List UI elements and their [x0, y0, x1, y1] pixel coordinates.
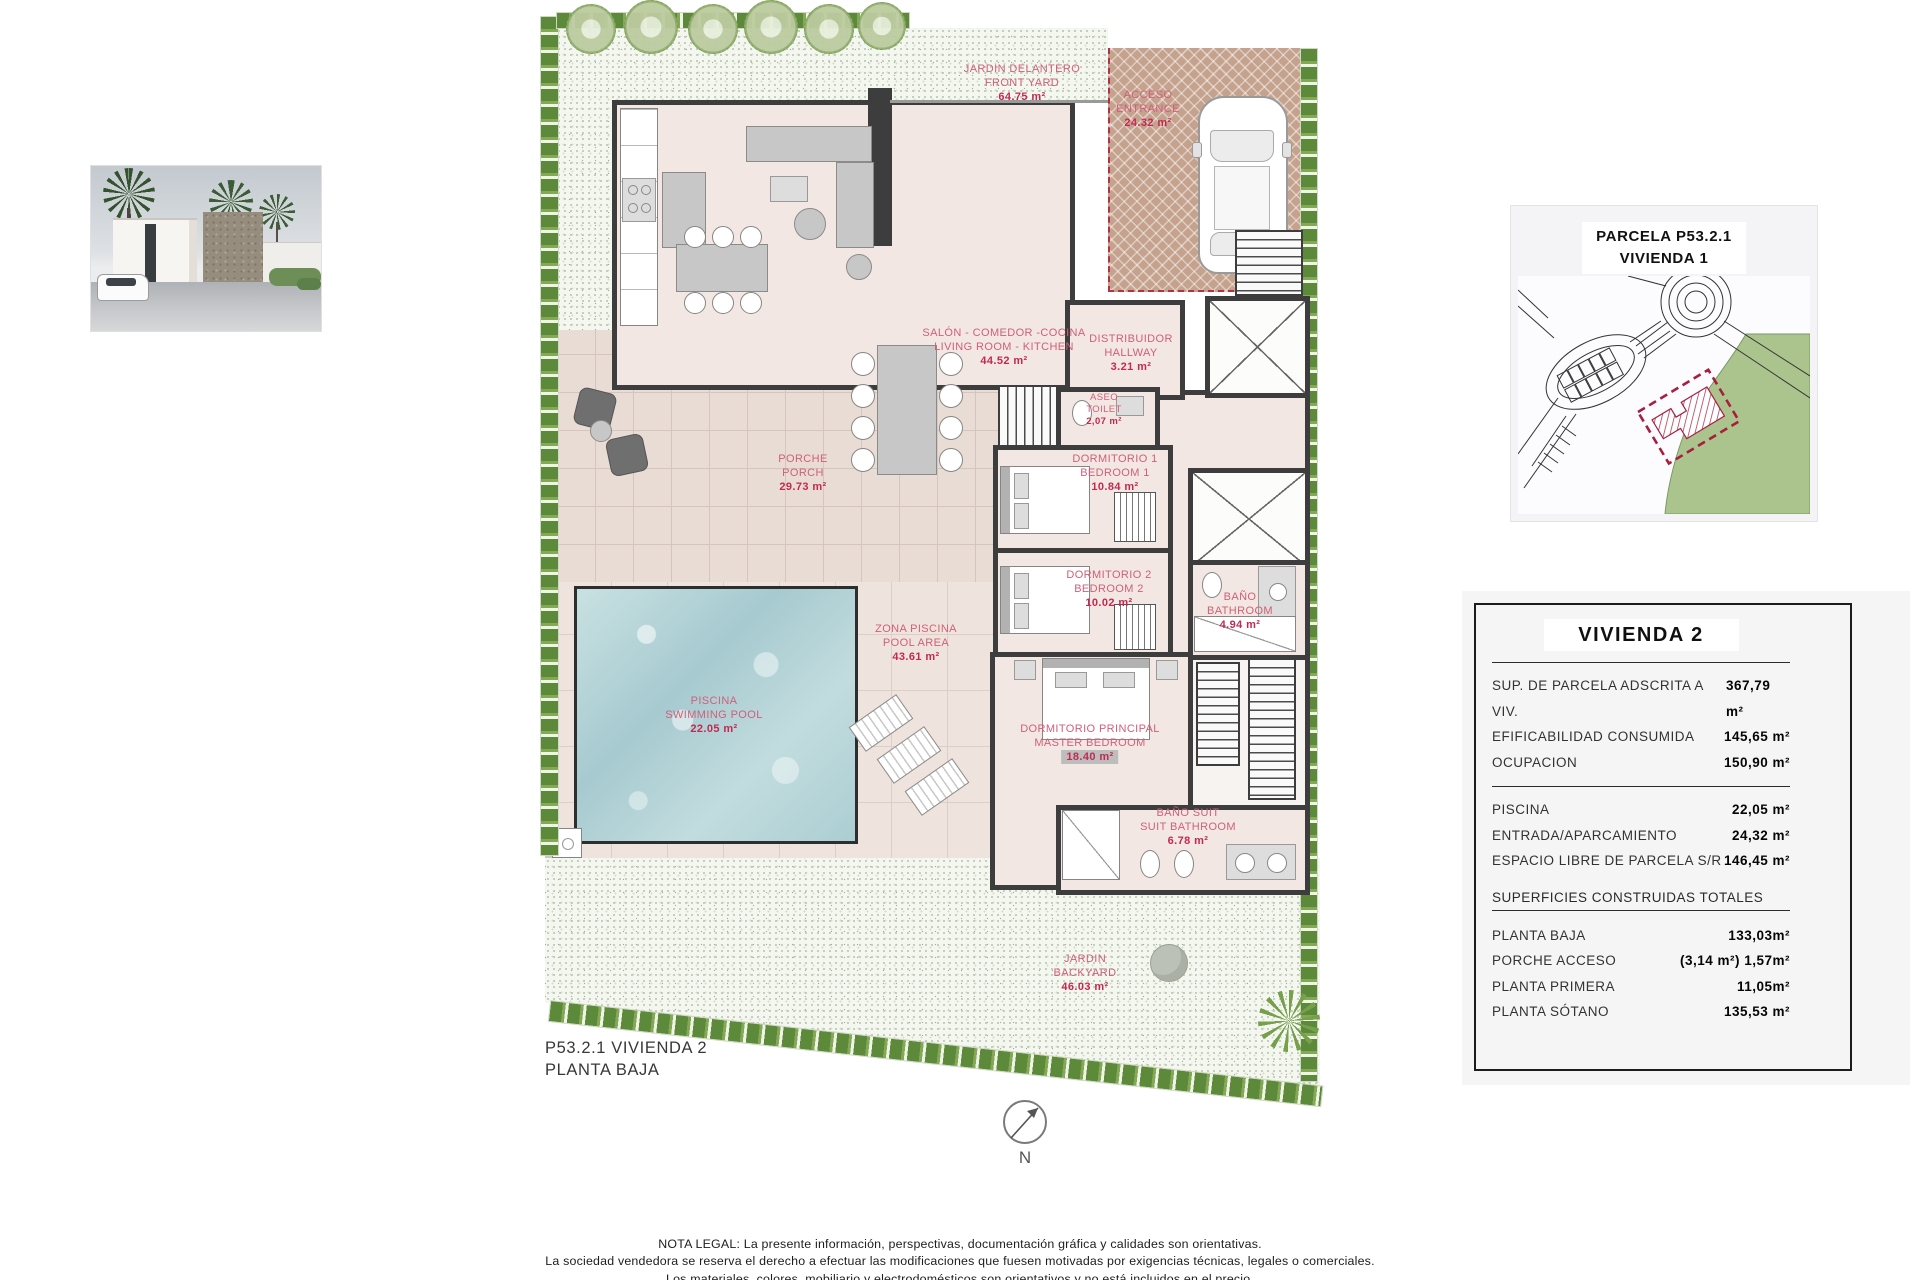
tree-icon	[804, 4, 854, 54]
row-value: (3,14 m²) 1,57m²	[1680, 948, 1790, 974]
row-label: ENTRADA/APARCAMIENTO	[1492, 823, 1677, 849]
room-area: 64.75 m²	[964, 90, 1080, 104]
armchair	[794, 208, 826, 240]
room-name-en: SUIT BATHROOM	[1140, 820, 1236, 834]
label-front-yard: JARDIN DELANTERO FRONT YARD 64.75 m²	[964, 62, 1080, 104]
room-area: 29.73 m²	[778, 480, 827, 494]
table-row: EFIFICABILIDAD CONSUMIDA 145,65 m²	[1492, 724, 1790, 750]
room-area: 10.02 m²	[1066, 596, 1151, 610]
room-area: 43.61 m²	[875, 650, 957, 664]
plan-code: P53.2.1 VIVIENDA 2	[545, 1037, 707, 1059]
wardrobe	[1114, 492, 1156, 542]
table-row: PISCINA 22,05 m²	[1492, 797, 1790, 823]
row-label: PLANTA BAJA	[1492, 923, 1586, 949]
site-map-title: PARCELA P53.2.1 VIVIENDA 1	[1582, 222, 1746, 274]
label-hallway: DISTRIBUIDOR HALLWAY 3.21 m²	[1089, 332, 1173, 374]
row-label: PISCINA	[1492, 797, 1550, 823]
row-value: 133,03m²	[1728, 923, 1790, 949]
dining-chair	[740, 292, 762, 314]
dining-chair	[712, 226, 734, 248]
row-label: ESPACIO LIBRE DE PARCELA S/R	[1492, 848, 1722, 874]
site-map-drawing	[1518, 276, 1810, 514]
label-backyard: JARDIN BACKYARD 46.03 m²	[1054, 952, 1117, 994]
room-name-en: PORCH	[778, 466, 827, 480]
room-area: 3.21 m²	[1089, 360, 1173, 374]
room-area: 6.78 m²	[1140, 834, 1236, 848]
row-value: 11,05m²	[1737, 974, 1790, 1000]
label-pool-area: ZONA PISCINA POOL AREA 43.61 m²	[875, 622, 957, 664]
room-name-es: PISCINA	[665, 694, 762, 708]
site-map-panel: PARCELA P53.2.1 VIVIENDA 1	[1510, 205, 1818, 522]
pouf	[846, 254, 872, 280]
room-name-es: DORMITORIO 1	[1072, 452, 1157, 466]
room-name-en: LIVING ROOM - KITCHEN	[922, 340, 1085, 354]
legal-line3: Los materiales, colores, mobiliario y el…	[0, 1271, 1920, 1280]
row-label: EFIFICABILIDAD CONSUMIDA	[1492, 724, 1695, 750]
nightstand	[1014, 660, 1036, 680]
table-row: PORCHE ACCESO (3,14 m²) 1,57m²	[1492, 948, 1790, 974]
room-area: 18.40 m²	[1061, 750, 1118, 764]
side-yard-ground	[556, 100, 614, 332]
room-name-es: ZONA PISCINA	[875, 622, 957, 636]
stairs-flight	[1248, 658, 1296, 800]
room-name-es: DISTRIBUIDOR	[1089, 332, 1173, 346]
porch-chair	[939, 416, 963, 440]
room-name-en: BACKYARD	[1054, 966, 1117, 980]
room-name-es: ASEO	[1086, 392, 1122, 404]
summary-panel: VIVIENDA 2 SUP. DE PARCELA ADSCRITA A VI…	[1462, 591, 1910, 1085]
patio-shaft	[1188, 468, 1310, 570]
palm-tree-icon	[103, 168, 155, 220]
floorplan-sheet: JARDIN DELANTERO FRONT YARD 64.75 m² ACC…	[0, 0, 1920, 1280]
north-label: N	[1003, 1148, 1047, 1168]
row-label: PLANTA PRIMERA	[1492, 974, 1615, 1000]
room-name-es: SALÓN - COMEDOR -COCINA	[922, 326, 1085, 340]
villa-window-strip	[145, 224, 156, 282]
table-row: PLANTA PRIMERA 11,05m²	[1492, 974, 1790, 1000]
row-value: 135,53 m²	[1724, 999, 1790, 1025]
sofa-chaise	[836, 162, 874, 248]
site-map-title-line2: VIVIENDA 1	[1596, 248, 1732, 270]
room-area: 24.32 m²	[1116, 116, 1180, 130]
room-area: 22.05 m²	[665, 722, 762, 736]
label-bathroom: BAÑO BATHROOM 4.94 m²	[1207, 590, 1273, 632]
room-name-en: HALLWAY	[1089, 346, 1173, 360]
side-table	[590, 420, 612, 442]
row-value: 146,45 m²	[1724, 848, 1790, 874]
label-bedroom1: DORMITORIO 1 BEDROOM 1 10.84 m²	[1072, 452, 1157, 494]
hedge-left	[540, 16, 559, 856]
label-master-bedroom: DORMITORIO PRINCIPAL MASTER BEDROOM 18.4…	[1020, 722, 1160, 764]
row-label: OCUPACION	[1492, 750, 1577, 776]
room-name-en: ENTRANCE	[1116, 102, 1180, 116]
table-row: ESPACIO LIBRE DE PARCELA S/R 146,45 m²	[1492, 848, 1790, 874]
label-toilet: ASEO TOILET 2,07 m²	[1086, 392, 1122, 428]
north-compass-icon	[998, 1096, 1052, 1150]
room-area: 10.84 m²	[1072, 480, 1157, 494]
shower-tray	[1062, 810, 1120, 880]
row-value: 150,90 m²	[1724, 750, 1790, 776]
row-label: PORCHE ACCESO	[1492, 948, 1616, 974]
tree-icon	[688, 4, 738, 54]
label-suite-bathroom: BAÑO SUIT SUIT BATHROOM 6.78 m²	[1140, 806, 1236, 848]
label-living: SALÓN - COMEDOR -COCINA LIVING ROOM - KI…	[922, 326, 1085, 368]
room-name-en: TOILET	[1086, 404, 1122, 416]
nightstand	[1156, 660, 1178, 680]
stove	[622, 178, 656, 222]
tree-icon	[744, 0, 798, 54]
row-value: 24,32 m²	[1732, 823, 1790, 849]
porch-chair	[939, 448, 963, 472]
divider	[1492, 662, 1790, 663]
row-label: SUP. DE PARCELA ADSCRITA A VIV.	[1492, 673, 1726, 724]
room-name-es: PORCHE	[778, 452, 827, 466]
dining-chair	[740, 226, 762, 248]
room-name-es: JARDIN DELANTERO	[964, 62, 1080, 76]
label-bedroom2: DORMITORIO 2 BEDROOM 2 10.02 m²	[1066, 568, 1151, 610]
wardrobe	[1114, 604, 1156, 650]
room-name-es: BAÑO SUIT	[1140, 806, 1236, 820]
row-value: 145,65 m²	[1724, 724, 1790, 750]
legal-line2: La sociedad vendedora se reserva el dere…	[0, 1253, 1920, 1270]
photo-car	[97, 274, 149, 301]
garden-palm-icon	[1258, 990, 1320, 1052]
exterior-photo	[90, 165, 322, 332]
photo-shrubs	[297, 278, 321, 290]
room-name-en: BEDROOM 1	[1072, 466, 1157, 480]
lounge-chair	[604, 432, 649, 477]
coffee-table	[770, 176, 808, 202]
room-name-en: FRONT YARD	[964, 76, 1080, 90]
site-map-title-line1: PARCELA P53.2.1	[1596, 226, 1732, 248]
room-name-es: DORMITORIO 2	[1066, 568, 1151, 582]
table-row: SUP. DE PARCELA ADSCRITA A VIV. 367,79 m…	[1492, 673, 1790, 724]
summary-title: VIVIENDA 2	[1544, 619, 1739, 651]
tree-icon	[566, 4, 616, 54]
summary-panel-inner: VIVIENDA 2 SUP. DE PARCELA ADSCRITA A VI…	[1474, 603, 1852, 1071]
label-porch: PORCHE PORCH 29.73 m²	[778, 452, 827, 494]
dining-chair	[684, 292, 706, 314]
row-value: 22,05 m²	[1732, 797, 1790, 823]
divider	[1492, 786, 1790, 787]
row-label: PLANTA SÓTANO	[1492, 999, 1609, 1025]
room-name-es: ACCESO	[1116, 88, 1180, 102]
table-row: ENTRADA/APARCAMIENTO 24,32 m²	[1492, 823, 1790, 849]
table-row: OCUPACION 150,90 m²	[1492, 750, 1790, 776]
dining-chair	[684, 226, 706, 248]
palm-tree-icon	[259, 194, 295, 230]
row-value: 367,79 m²	[1726, 673, 1790, 724]
room-name-en: BEDROOM 2	[1066, 582, 1151, 596]
label-pool: PISCINA SWIMMING POOL 22.05 m²	[665, 694, 762, 736]
legal-note: NOTA LEGAL: La presente información, per…	[0, 1236, 1920, 1280]
stairs-basement	[998, 385, 1062, 449]
plan-floor: PLANTA BAJA	[545, 1059, 707, 1081]
room-name-en: SWIMMING POOL	[665, 708, 762, 722]
skylight-box	[1205, 296, 1310, 398]
room-name-es: BAÑO	[1207, 590, 1273, 604]
room-name-en: POOL AREA	[875, 636, 957, 650]
tree-icon	[858, 2, 906, 50]
room-name-es: JARDIN	[1054, 952, 1117, 966]
sofa	[746, 126, 872, 162]
built-surfaces-header: SUPERFICIES CONSTRUIDAS TOTALES	[1492, 890, 1790, 911]
garden-tree-icon	[1150, 944, 1188, 982]
toilet-fixture	[1140, 850, 1160, 878]
villa-stone-block	[203, 212, 263, 284]
bidet-fixture	[1174, 850, 1194, 878]
dining-chair	[712, 292, 734, 314]
porch-chair	[851, 416, 875, 440]
room-area: 4.94 m²	[1207, 618, 1273, 632]
room-name-en: MASTER BEDROOM	[1020, 736, 1160, 750]
dining-table	[676, 244, 768, 292]
legal-line1: NOTA LEGAL: La presente información, per…	[0, 1236, 1920, 1253]
table-row: PLANTA SÓTANO 135,53 m²	[1492, 999, 1790, 1025]
exterior-stairs	[1235, 230, 1303, 296]
porch-chair	[939, 384, 963, 408]
room-area: 44.52 m²	[922, 354, 1085, 368]
plan-footer: P53.2.1 VIVIENDA 2 PLANTA BAJA	[545, 1037, 707, 1081]
table-row: PLANTA BAJA 133,03m²	[1492, 923, 1790, 949]
porch-chair	[851, 384, 875, 408]
porch-chair	[851, 448, 875, 472]
stairs-flight	[1196, 662, 1240, 766]
room-name-es: DORMITORIO PRINCIPAL	[1020, 722, 1160, 736]
label-entrance: ACCESO ENTRANCE 24.32 m²	[1116, 88, 1180, 130]
room-name-en: BATHROOM	[1207, 604, 1273, 618]
double-vanity	[1226, 844, 1296, 880]
tree-icon	[624, 0, 678, 54]
porch-chair	[851, 352, 875, 376]
room-area: 46.03 m²	[1054, 980, 1117, 994]
room-area: 2,07 m²	[1086, 416, 1122, 428]
